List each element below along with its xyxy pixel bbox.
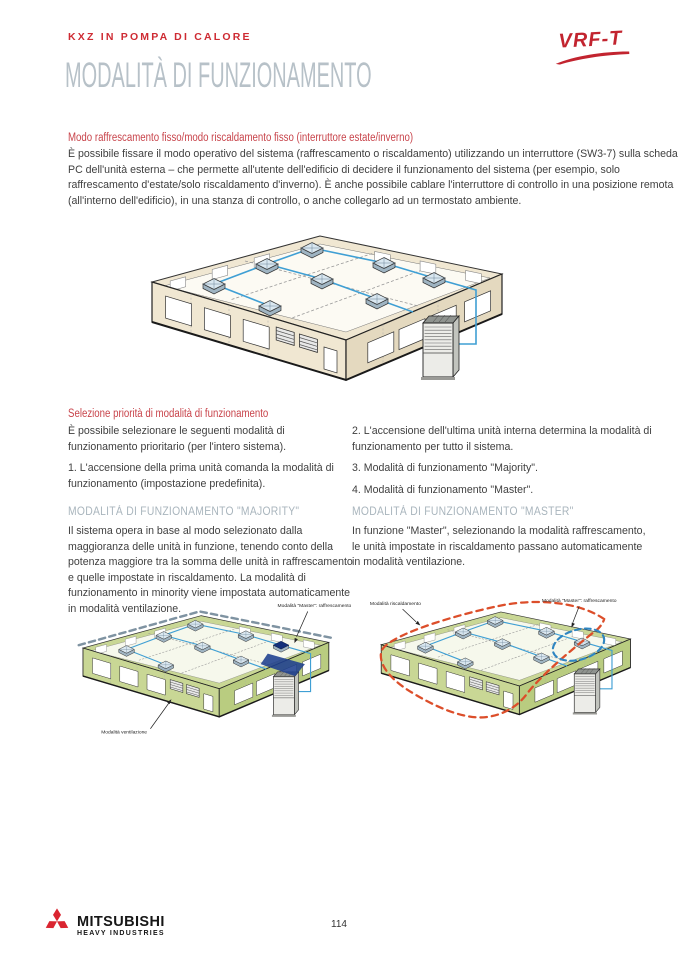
- footer-brand-subname: HEAVY INDUSTRIES: [77, 929, 165, 938]
- list-item: 3. Modalità di funzionamento "Majority".: [352, 461, 652, 477]
- diagram-label-master-cooling: Modalità "Master": raffrescamento: [278, 603, 352, 609]
- label-arrow: [403, 609, 417, 622]
- section-priority-heading-wrap: Selezione priorità di modalità di funzio…: [68, 404, 306, 422]
- eyebrow-heading: KXZ IN POMPA DI CALORE: [68, 31, 252, 43]
- paragraph: È possibile selezionare le seguenti moda…: [68, 424, 352, 455]
- priority-left-column: È possibile selezionare le seguenti moda…: [68, 424, 352, 498]
- list-item: 1. L'accensione della prima unità comand…: [68, 461, 352, 492]
- label-arrow: [573, 606, 579, 622]
- brand-logo-text: VRF-T: [551, 28, 630, 52]
- majority-heading-wrap: MODALITÀ DI FUNZIONAMENTO "MAJORITY": [68, 502, 325, 520]
- building-diagram-heating-master: Modalità riscaldamento Modalità "Master"…: [358, 592, 658, 738]
- diagram-label-master-cooling: Modalità "Master": raffrescamento: [542, 598, 617, 604]
- diagram-label-heating: Modalità riscaldamento: [370, 601, 421, 607]
- section-fixed-mode-body: È possibile fissare il modo operativo de…: [68, 147, 678, 215]
- section-heading: MODALITÀ DI FUNZIONAMENTO "MAJORITY": [68, 506, 299, 518]
- section-heading: Selezione priorità di modalità di funzio…: [68, 408, 268, 420]
- priority-right-column: 2. L'accensione dell'ultima unità intern…: [352, 424, 652, 504]
- list-item: 4. Modalità di funzionamento "Master".: [352, 483, 652, 499]
- label-arrow: [150, 701, 170, 728]
- brand-logo: VRF-T: [551, 28, 631, 70]
- paragraph: In funzione "Master", selezionando la mo…: [352, 524, 652, 571]
- catalog-page: KXZ IN POMPA DI CALORE MODALITÀ DI FUNZI…: [0, 0, 678, 959]
- master-heading-wrap: MODALITÀ DI FUNZIONAMENTO "MASTER": [352, 502, 598, 520]
- page-number: 114: [0, 919, 678, 930]
- section-heading: Modo raffrescamento fisso/modo riscaldam…: [68, 132, 413, 144]
- paragraph: È possibile fissare il modo operativo de…: [68, 147, 678, 209]
- section-fixed-mode-heading-wrap: Modo raffrescamento fisso/modo riscaldam…: [68, 128, 479, 146]
- brand-logo-swoosh-icon: [552, 50, 630, 65]
- master-body: In funzione "Master", selezionando la mo…: [352, 524, 652, 577]
- diagram-label-ventilation: Modalità ventilazione: [101, 730, 147, 736]
- building-diagram-overview: [128, 230, 528, 390]
- page-title: MODALITÀ DI FUNZIONAMENTO: [65, 56, 372, 96]
- list-item: 2. L'accensione dell'ultima unità intern…: [352, 424, 652, 455]
- building-diagram-master-ventilation: Modalità "Master": raffrescamento Modali…: [60, 596, 356, 740]
- section-heading: MODALITÀ DI FUNZIONAMENTO "MASTER": [352, 506, 574, 518]
